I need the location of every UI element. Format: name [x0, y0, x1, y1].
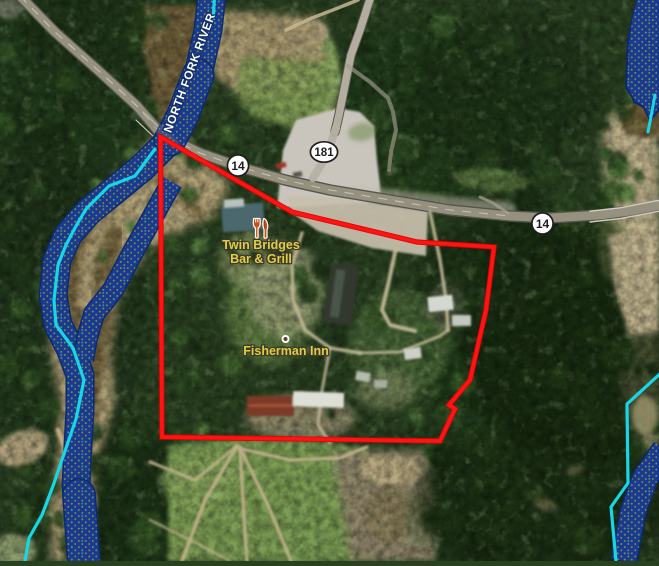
svg-text:Fisherman Inn: Fisherman Inn [243, 344, 328, 358]
svg-text:14: 14 [231, 159, 245, 173]
svg-text:181: 181 [314, 147, 334, 159]
svg-text:Bar & Grill: Bar & Grill [230, 252, 292, 266]
svg-text:Twin Bridges: Twin Bridges [222, 238, 300, 252]
svg-text:14: 14 [536, 217, 550, 231]
